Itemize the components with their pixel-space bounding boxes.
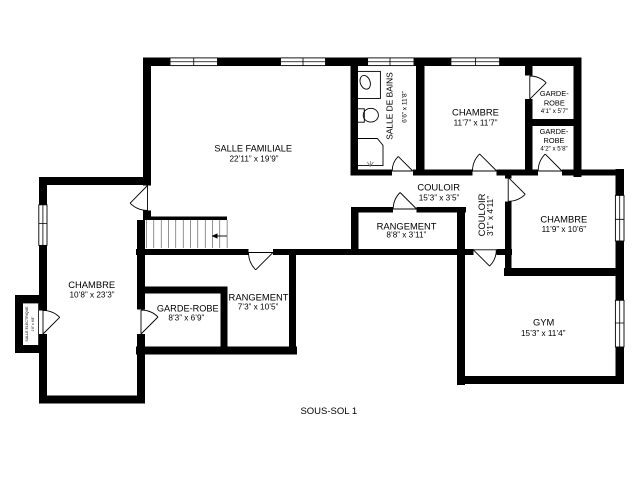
svg-text:RANGEMENT: RANGEMENT [229,291,289,302]
svg-text:3’1” x 4’11”: 3’1” x 4’11” [486,196,495,236]
svg-text:SOUS-SOL 1: SOUS-SOL 1 [300,406,357,417]
svg-text:8’3” x 6’9”: 8’3” x 6’9” [168,313,204,322]
svg-text:CHAMBRE: CHAMBRE [540,213,587,224]
svg-text:8’8” x 3’11”: 8’8” x 3’11” [386,231,426,240]
svg-text:22’11” x 19’9”: 22’11” x 19’9” [229,154,278,163]
svg-text:SALLE DE BAINS: SALLE DE BAINS [384,72,394,140]
svg-text:11’9” x 10’6”: 11’9” x 10’6” [542,225,587,234]
svg-text:10’8” x 23’3”: 10’8” x 23’3” [69,290,114,299]
svg-text:SALLE FAMILIALE: SALLE FAMILIALE [214,143,292,153]
svg-text:7’3” x 10’5”: 7’3” x 10’5” [238,302,279,311]
svg-text:ROBE: ROBE [544,136,565,145]
svg-text:SALLE ELECTRIQUE: SALLE ELECTRIQUE [25,306,29,342]
svg-text:4’1” x 5’7”: 4’1” x 5’7” [541,108,568,115]
svg-text:1’6” x 4’8”: 1’6” x 4’8” [31,317,35,332]
svg-text:GARDE-: GARDE- [540,127,569,136]
svg-text:CHAMBRE: CHAMBRE [68,279,115,290]
svg-text:11’7” x 11’7”: 11’7” x 11’7” [454,118,498,127]
svg-text:GARDE-: GARDE- [540,89,569,98]
svg-text:GYM: GYM [533,316,555,327]
svg-text:COULOIR: COULOIR [417,181,460,192]
svg-text:GARDE-ROBE: GARDE-ROBE [157,304,219,314]
svg-text:6’6” x 11’8”: 6’6” x 11’8” [401,91,408,123]
svg-text:CHAMBRE: CHAMBRE [452,106,499,117]
svg-text:15’3” x 11’4”: 15’3” x 11’4” [521,329,566,338]
svg-text:ROBE: ROBE [544,98,565,107]
svg-text:15’3” x 3’5”: 15’3” x 3’5” [419,193,460,202]
svg-text:4’2” x 5’8”: 4’2” x 5’8” [540,146,567,153]
